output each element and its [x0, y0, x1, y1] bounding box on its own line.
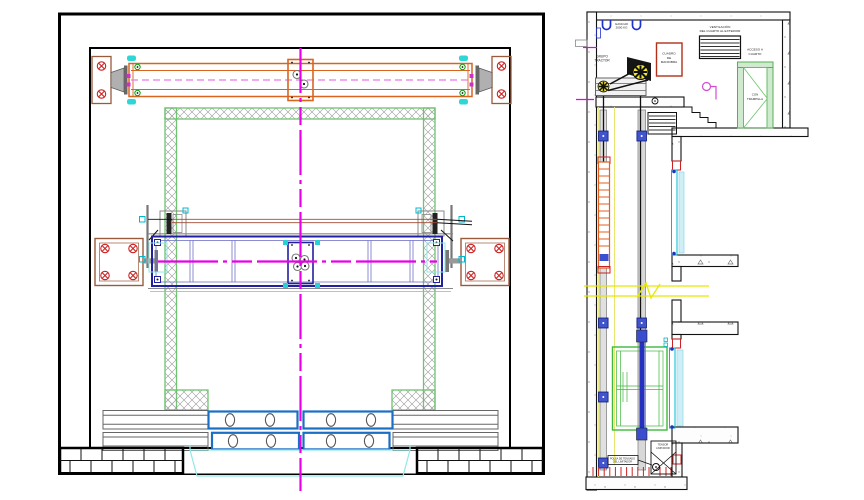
section-view: GANCHO 2000 KG GRUPO TRACTOR CUADRO DE M…: [576, 12, 809, 490]
svg-text:TRACTOR: TRACTOR: [594, 59, 610, 63]
door-header-2: [673, 339, 681, 348]
svg-text:CUARTO: CUARTO: [749, 52, 763, 56]
svg-text:DEL LIMITADOR: DEL LIMITADOR: [613, 461, 632, 464]
room-vent-louver: [700, 36, 741, 59]
car-rail-core: [640, 337, 645, 440]
counterweight: [598, 157, 610, 273]
traction-sheave: [633, 65, 648, 80]
deflection-sheave: [598, 81, 609, 92]
plan-bedplate-assembly: [95, 205, 509, 292]
cad-drawing-canvas: GANCHO 2000 KG GRUPO TRACTOR CUADRO DE M…: [0, 0, 864, 500]
section-landing-door-1: [672, 170, 685, 256]
elevator-cad-drawing: GANCHO 2000 KG GRUPO TRACTOR CUADRO DE M…: [0, 0, 864, 500]
level-tag: [576, 40, 588, 47]
svg-text:DEL CUARTO AL EXTERIOR: DEL CUARTO AL EXTERIOR: [700, 29, 742, 33]
plan-view: [60, 14, 544, 491]
svg-text:MANIOBRA: MANIOBRA: [661, 60, 678, 64]
overspeed-governor: [703, 83, 717, 100]
svg-text:TRAMPILLA: TRAMPILLA: [747, 97, 763, 101]
stairs: [684, 107, 716, 128]
door-header-1: [673, 161, 681, 170]
car-safety-block: [637, 428, 648, 440]
car-crosshead: [637, 330, 648, 342]
svg-text:2000 KG: 2000 KG: [616, 26, 629, 30]
svg-text:LIMITADOR: LIMITADOR: [656, 447, 670, 450]
